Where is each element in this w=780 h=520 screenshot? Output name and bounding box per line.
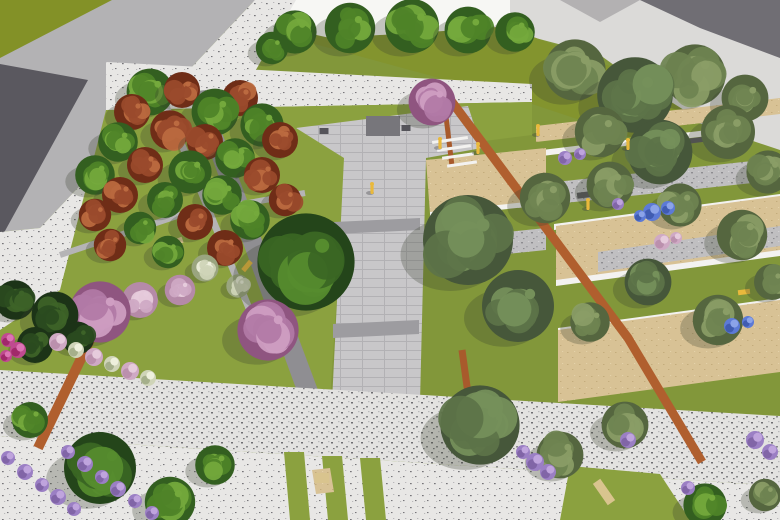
tree-foliage-blob (278, 136, 292, 150)
tree-foliage-blob (89, 168, 106, 185)
tree-foliage-blob (424, 95, 451, 122)
tree-foliage-blob (244, 169, 261, 186)
monument-dot-left (320, 128, 329, 134)
shrub-bloom (116, 483, 124, 491)
tree-highlight (135, 103, 140, 108)
shrub-bloom (564, 152, 571, 159)
figure-head (438, 137, 442, 141)
tree-foliage-blob (509, 25, 528, 44)
figure-body (536, 127, 539, 136)
tree-highlight (477, 219, 490, 232)
tree-foliage-blob (164, 80, 185, 101)
monument-dot-right (402, 125, 411, 131)
tree-foliage-blob (262, 171, 277, 186)
shrub-b (742, 316, 754, 328)
shrub-l (77, 456, 93, 472)
shrub-l (1, 451, 15, 465)
shrub-bloom (7, 452, 14, 459)
tree-foliage-blob (25, 343, 36, 354)
shrub-bloom (56, 491, 64, 499)
tree-highlight (487, 406, 498, 417)
monument (366, 116, 400, 136)
figure-head (536, 124, 540, 128)
tree-foliage-blob (202, 267, 211, 276)
tree-foliage-blob (103, 240, 116, 253)
shrub-l (110, 481, 126, 497)
tree-foliage-blob (679, 79, 698, 98)
tree-highlight (594, 313, 600, 319)
shrub-bloom (101, 471, 108, 478)
figure-body (626, 141, 629, 150)
tree-foliage-blob (706, 495, 727, 516)
tree-highlight (168, 191, 173, 196)
tree-highlight (198, 213, 203, 218)
shrub-l (516, 445, 530, 459)
tree-highlight (723, 308, 730, 315)
tree-highlight (239, 149, 245, 155)
tree-highlight (106, 297, 115, 306)
tree-highlight (226, 186, 232, 192)
tree-highlight (733, 119, 741, 127)
shrub-w (140, 370, 156, 386)
tree-foliage-blob (592, 115, 621, 144)
shrub-bloom (110, 358, 118, 366)
shrub-pl (121, 362, 139, 380)
shrub-l (746, 431, 764, 449)
tree-foliage-blob (608, 414, 630, 436)
shrub-m (0, 350, 12, 362)
shrub-bloom (650, 205, 659, 214)
shrub-b (724, 318, 740, 334)
shrub-bloom (73, 503, 80, 510)
tree-highlight (219, 456, 225, 462)
shrub-l (574, 148, 586, 160)
shrub-w (68, 342, 84, 358)
tree-highlight (148, 156, 153, 161)
shrub-pl (654, 234, 670, 250)
tree-foliage-blob (219, 242, 230, 253)
tree-foliage-blob (77, 289, 108, 320)
shrub-l (61, 445, 75, 459)
tree-highlight (768, 487, 773, 492)
tree-foliage-blob (186, 127, 207, 148)
tree-highlight (629, 414, 636, 421)
tree-highlight (666, 137, 675, 146)
tree-foliage-blob (633, 64, 674, 105)
tree-highlight (143, 220, 148, 225)
tree-highlight (564, 444, 571, 451)
tree-highlight (315, 239, 329, 253)
tree-foliage-blob (88, 206, 105, 223)
shrub-bloom (533, 455, 542, 464)
tree-foliage-blob (719, 125, 738, 144)
shrub-pl (670, 232, 682, 244)
shrub-l (50, 489, 66, 505)
shrub-b (661, 201, 675, 215)
shrub-l (558, 151, 572, 165)
tree-highlight (19, 291, 25, 297)
tree-foliage-blob (290, 25, 312, 47)
tree-highlight (265, 166, 270, 171)
figure-head (370, 182, 374, 186)
tree-highlight (299, 22, 305, 28)
tree-foliage-blob (204, 461, 223, 480)
shrub-b (643, 203, 661, 221)
figure-body (476, 145, 479, 154)
tree-highlight (113, 237, 118, 242)
tree-foliage-blob (115, 138, 131, 154)
tree-foliage-blob (461, 17, 483, 39)
shrub-bloom (92, 350, 101, 359)
shrub-l (17, 464, 33, 480)
shrub-l (681, 481, 695, 495)
shrub-pl (85, 348, 103, 366)
shrub-bloom (617, 199, 623, 205)
figure-head (626, 138, 630, 142)
tree-foliage-blob (276, 184, 293, 201)
shrub-bloom (146, 372, 154, 380)
tree-highlight (605, 120, 612, 127)
tree-highlight (219, 101, 226, 108)
tree-highlight (288, 192, 293, 197)
tree-highlight (709, 495, 715, 501)
shrub-l (612, 198, 624, 210)
shrub-bloom (626, 434, 634, 442)
tree-foliage-blob (438, 396, 483, 441)
tree-foliage-blob (543, 182, 566, 205)
tree-foliage-blob (205, 178, 228, 201)
shrub-bloom (753, 433, 762, 442)
shrub-b (634, 210, 646, 222)
tree-highlight (33, 411, 38, 416)
shrub-bloom (639, 211, 645, 217)
shrub-bloom (546, 466, 554, 474)
tree-highlight (194, 162, 200, 168)
tree-foliage-blob (572, 303, 595, 326)
tree-foliage-blob (223, 150, 240, 167)
tree-highlight (107, 451, 117, 461)
tree-highlight (81, 330, 86, 335)
shrub-l (128, 494, 142, 508)
tree-foliage-blob (169, 286, 180, 297)
tree-highlight (581, 55, 590, 64)
tree-highlight (436, 91, 443, 98)
tree-foliage-blob (43, 309, 59, 325)
shrub-bloom (747, 317, 753, 323)
tree-foliage-blob (121, 97, 138, 114)
tree-highlight (525, 289, 535, 299)
tree-highlight (275, 40, 280, 45)
shrub-bloom (41, 479, 48, 486)
tree-highlight (652, 271, 659, 278)
park-aerial-render (0, 0, 780, 520)
tree-highlight (123, 186, 128, 191)
shrub-pl (49, 333, 67, 351)
tree-highlight (59, 304, 66, 311)
shrub-bloom (23, 466, 31, 474)
shrub-bloom (667, 202, 674, 209)
shrub-bloom (768, 446, 776, 454)
tree-highlight (99, 166, 105, 172)
tree-highlight (472, 19, 479, 26)
tree-highlight (550, 186, 557, 193)
tree-highlight (171, 244, 176, 249)
tree-foliage-blob (543, 430, 569, 456)
shrub-m (10, 342, 26, 358)
shrub-bloom (730, 320, 738, 328)
tree-foliage-blob (747, 154, 771, 178)
shrub-bloom (56, 335, 65, 344)
shrub-l (67, 502, 81, 516)
tree-highlight (122, 133, 128, 139)
tree-highlight (684, 195, 690, 201)
tree-highlight (228, 239, 233, 244)
tree-highlight (254, 211, 260, 217)
shrub-w (104, 356, 120, 372)
shrub-l (145, 506, 159, 520)
tree-highlight (283, 131, 288, 136)
shrub-bloom (67, 446, 74, 453)
figure-body (370, 185, 373, 194)
tree-highlight (614, 174, 621, 181)
shrub-l (95, 470, 109, 484)
tan-bench-3 (315, 473, 329, 483)
figure-head (476, 142, 480, 146)
shrub-bloom (687, 482, 694, 489)
shrub-bloom (134, 495, 141, 502)
shrub-l (620, 432, 636, 448)
tree-highlight (208, 262, 212, 266)
shrub-bloom (16, 344, 24, 352)
park-render-canvas (0, 0, 780, 520)
tree-highlight (417, 13, 425, 21)
tree-highlight (143, 291, 148, 296)
tree-highlight (747, 223, 754, 230)
shrub-bloom (579, 149, 585, 155)
figure-body (586, 201, 589, 210)
shrub-bloom (660, 236, 668, 244)
shrub-bloom (675, 233, 681, 239)
tree-highlight (208, 133, 213, 138)
shrub-bloom (151, 507, 158, 514)
tree-highlight (266, 115, 272, 121)
tree-highlight (38, 336, 43, 341)
tree-foliage-blob (199, 97, 220, 118)
shrub-bloom (522, 446, 529, 453)
tree-highlight (243, 89, 248, 94)
tree-highlight (519, 23, 525, 29)
tree-highlight (185, 81, 190, 86)
shrub-bloom (74, 344, 82, 352)
shrub-bloom (7, 334, 14, 341)
tree-highlight (772, 162, 778, 168)
tree-highlight (183, 283, 187, 287)
tree-highlight (642, 77, 653, 88)
figure-head (586, 198, 590, 202)
tree-highlight (749, 87, 756, 94)
figure-body (438, 140, 441, 149)
shrub-l (540, 464, 556, 480)
tree-foliage-blob (157, 247, 173, 263)
tree-highlight (98, 207, 103, 212)
tree-highlight (175, 490, 182, 497)
tree-highlight (701, 60, 710, 69)
tree-foliage-blob (160, 197, 175, 212)
tree-foliage-blob (140, 300, 153, 313)
tree-highlight (274, 315, 283, 324)
shrub-l (762, 444, 778, 460)
tree-highlight (174, 121, 180, 127)
shrub-bloom (5, 351, 11, 357)
shrub-bloom (128, 364, 137, 373)
tree-highlight (355, 16, 362, 23)
shrub-bloom (83, 458, 91, 466)
shrub-l (35, 478, 49, 492)
